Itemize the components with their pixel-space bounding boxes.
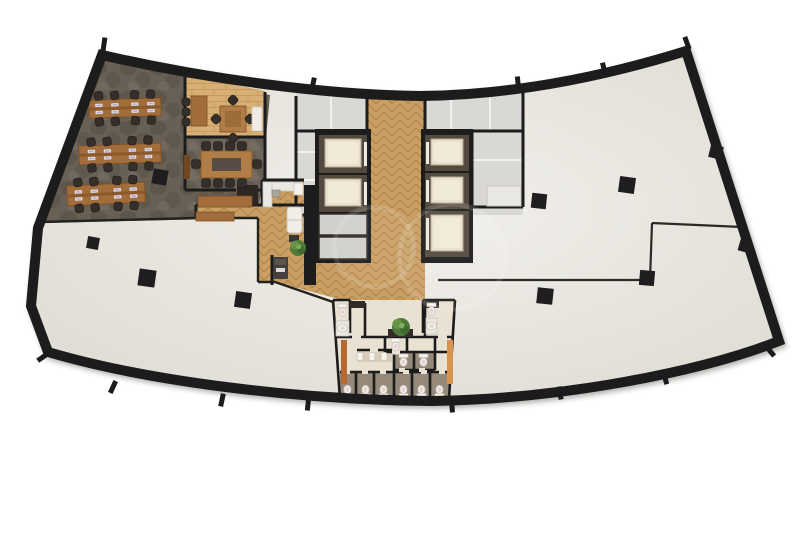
- copier-top: [275, 259, 286, 265]
- structural-column: [151, 168, 168, 185]
- chair: [238, 142, 247, 151]
- monitor-screen: [146, 156, 151, 158]
- chair: [143, 135, 152, 144]
- elevator-cab-right-1-car-floor: [434, 142, 460, 162]
- monitor-screen: [76, 191, 81, 193]
- monitor-screen: [131, 188, 136, 190]
- chair: [146, 89, 155, 98]
- elevator-cab-right-2-door: [426, 180, 429, 202]
- door-gap: [370, 349, 378, 353]
- conference-cabinet: [184, 155, 190, 179]
- facade-tick: [449, 399, 455, 412]
- toilet-lid: [421, 359, 425, 364]
- door-gap: [439, 370, 445, 374]
- floor-plan-svg: [0, 0, 802, 535]
- monitor-screen: [148, 103, 153, 105]
- door-gap: [362, 370, 368, 374]
- chair: [147, 115, 156, 124]
- monitor-screen: [92, 197, 97, 199]
- pantry-counter: [263, 182, 272, 207]
- monitor-screen: [89, 158, 94, 160]
- monitor-screen: [130, 149, 135, 151]
- monitor-screen: [133, 110, 138, 112]
- urinal: [369, 353, 375, 361]
- watermark-circle: [399, 204, 505, 310]
- monitor-screen: [146, 149, 151, 151]
- chair: [112, 176, 121, 185]
- monitor-screen: [113, 111, 118, 113]
- chair: [253, 160, 262, 169]
- toilet-tank: [338, 304, 347, 308]
- structural-column: [531, 193, 547, 209]
- toilet-lid: [381, 387, 385, 392]
- chair: [90, 203, 100, 213]
- office-desk: [191, 96, 207, 126]
- toilet-lid: [363, 387, 367, 392]
- elevator-cab-left-2-car-floor: [328, 182, 358, 203]
- toilet-lid: [437, 387, 441, 392]
- monitor-screen: [149, 110, 154, 112]
- copier-paper: [276, 268, 285, 272]
- chair: [87, 163, 97, 173]
- toilet-lid: [419, 387, 423, 392]
- structural-column: [618, 176, 636, 194]
- counter: [487, 186, 521, 206]
- chair: [95, 117, 105, 127]
- chair: [94, 91, 104, 101]
- lounge-plant-foliage: [296, 244, 301, 249]
- restroom-plant-foliage: [399, 323, 404, 328]
- chair: [86, 137, 96, 147]
- door-gap: [399, 368, 405, 372]
- floor-plan: [0, 0, 802, 535]
- door-gap: [419, 368, 425, 372]
- chair: [214, 179, 223, 188]
- conference-table-runner: [212, 158, 241, 171]
- accent-wall: [341, 340, 347, 384]
- chair: [111, 116, 121, 126]
- toilet-lid: [345, 387, 349, 392]
- sink-basin: [429, 324, 435, 328]
- chair: [128, 162, 137, 171]
- door-gap: [352, 335, 361, 340]
- toilet-lid: [429, 308, 433, 313]
- toilet-lid: [401, 359, 405, 364]
- monitor-screen: [92, 190, 97, 192]
- lounge-plant: [290, 240, 306, 256]
- structural-column: [536, 287, 554, 305]
- structural-column: [86, 236, 100, 250]
- chair: [238, 179, 247, 188]
- chair: [114, 202, 123, 211]
- chair: [202, 179, 211, 188]
- chair: [74, 203, 84, 213]
- chair: [182, 108, 190, 116]
- chair: [192, 160, 201, 169]
- monitor-screen: [131, 195, 136, 197]
- elevator-cab-left-1-door: [364, 142, 367, 166]
- door-gap: [438, 335, 447, 340]
- monitor-screen: [105, 150, 110, 152]
- monitor-screen: [105, 157, 110, 159]
- monitor-screen: [130, 156, 135, 158]
- chair: [144, 161, 153, 170]
- chair: [128, 175, 137, 184]
- sideboard: [198, 196, 252, 207]
- urinal: [357, 353, 363, 361]
- vanity-counter: [350, 301, 365, 308]
- chair: [226, 179, 235, 188]
- door-gap: [380, 370, 386, 374]
- monitor-screen: [96, 105, 101, 107]
- credenza-white: [252, 107, 262, 131]
- monitor-screen: [132, 103, 137, 105]
- toilet-tank: [399, 354, 408, 358]
- monitor-screen: [115, 196, 120, 198]
- chair: [226, 142, 235, 151]
- restroom-plant: [392, 318, 410, 336]
- meeting-table-inner: [225, 111, 241, 127]
- toilet-lid: [340, 309, 344, 314]
- pantry-sink: [272, 190, 280, 197]
- chair: [73, 177, 83, 187]
- chair: [214, 142, 223, 151]
- chair: [202, 142, 211, 151]
- monitor-screen: [76, 198, 81, 200]
- toilet-lid: [401, 387, 405, 392]
- chair: [130, 90, 139, 99]
- monitor-screen: [89, 151, 94, 153]
- structural-column: [639, 270, 655, 286]
- chair: [131, 116, 140, 125]
- elevator-cab-right-1-door: [426, 142, 429, 164]
- toilet-lid: [393, 344, 397, 349]
- accent-wall: [447, 340, 453, 384]
- fridge: [294, 183, 303, 195]
- sink-basin: [340, 326, 346, 330]
- elevator-cab-right-2-car-floor: [434, 180, 460, 200]
- chair: [103, 163, 113, 173]
- chair: [89, 177, 99, 187]
- toilet-tank: [419, 354, 428, 358]
- monitor-screen: [112, 104, 117, 106]
- chair: [130, 201, 139, 210]
- structural-column: [137, 268, 156, 287]
- chair: [127, 136, 136, 145]
- urinal: [381, 353, 387, 361]
- chair: [110, 90, 120, 100]
- chair: [182, 118, 190, 126]
- elevator-cab-left-1-car-floor: [328, 142, 358, 164]
- elevator-cab-left-2-door: [364, 182, 367, 205]
- structural-column: [234, 291, 252, 309]
- toilet-tank: [391, 339, 400, 343]
- monitor-screen: [115, 189, 120, 191]
- sideboard: [196, 212, 234, 221]
- monitor-screen: [97, 112, 102, 114]
- chair: [182, 98, 190, 106]
- chair: [102, 137, 112, 147]
- core-west-wall: [304, 185, 316, 285]
